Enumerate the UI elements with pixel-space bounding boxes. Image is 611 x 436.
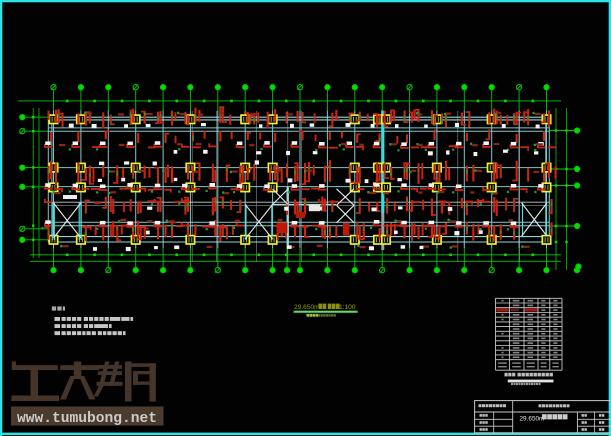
svg-text:www.tumubong.net: www.tumubong.net bbox=[17, 411, 157, 427]
svg-text:29.650m: 29.650m bbox=[294, 304, 320, 311]
svg-text:1:100: 1:100 bbox=[339, 304, 356, 311]
svg-text:29.650m: 29.650m bbox=[520, 415, 545, 422]
